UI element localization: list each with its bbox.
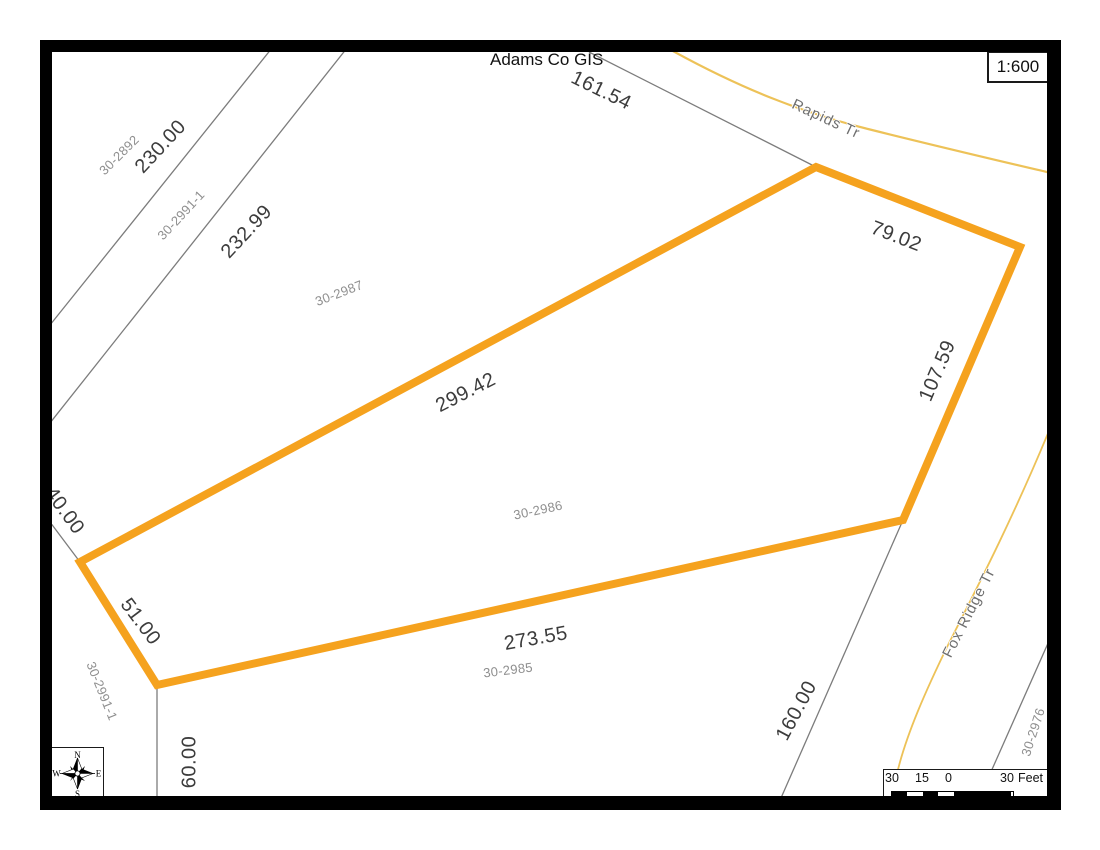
scale-unit: Feet: [1018, 771, 1043, 785]
scale-bar: 30 15 0 30 Feet: [883, 769, 1049, 801]
scale-ratio-value: 1:600: [997, 57, 1040, 77]
parcel-id-label: 30-2892: [96, 132, 142, 178]
dimension-label: 161.54: [567, 67, 635, 116]
compass-rose-icon: N S W E: [52, 748, 103, 798]
dimension-label: 60.00: [179, 736, 202, 789]
boundary-line-160: [781, 520, 903, 798]
map-neatline-frame: [40, 40, 1061, 810]
scale-ratio-box: 1:600: [987, 51, 1049, 83]
dimension-label: 51.00: [115, 594, 165, 650]
dimension-label: 107.59: [915, 337, 961, 405]
dimension-label: 230.00: [131, 116, 192, 179]
dimension-label: 273.55: [502, 622, 569, 656]
gis-map-page: Adams Co GIS 1:600 161.54 79.02 107.59 2…: [0, 0, 1100, 850]
compass-s: S: [75, 789, 80, 798]
dimension-label: 232.99: [217, 201, 278, 264]
north-arrow-box: N S W E: [51, 747, 104, 799]
dimension-label: 40.00: [39, 483, 89, 539]
boundary-line-230: [50, 48, 272, 325]
scale-bar-graphic: [891, 791, 1014, 801]
scale-tick: 0: [945, 771, 952, 785]
map-title: Adams Co GIS: [490, 50, 603, 70]
dimension-label: 160.00: [772, 677, 822, 744]
parcel-id-label: 30-2976: [1018, 706, 1048, 758]
scale-tick: 30: [885, 771, 899, 785]
dimension-label: 299.42: [432, 368, 500, 418]
scale-tick: 30: [1000, 771, 1014, 785]
compass-w: W: [52, 769, 61, 779]
parcel-id-label: 30-2986: [512, 497, 564, 522]
parcel-id-label: 30-2991-1: [154, 187, 207, 243]
road-label-rapids-tr: Rapids Tr: [789, 96, 863, 142]
parcel-id-label: 30-2991-1: [83, 659, 120, 722]
dimension-label: 79.02: [867, 217, 924, 257]
boundary-line-232: [50, 48, 347, 423]
parcel-id-label: 30-2987: [313, 277, 365, 309]
road-label-fox-ridge-tr: Fox Ridge Tr: [939, 566, 999, 661]
scale-tick: 15: [915, 771, 929, 785]
compass-e: E: [96, 769, 102, 779]
parcel-id-label: 30-2985: [482, 660, 533, 681]
